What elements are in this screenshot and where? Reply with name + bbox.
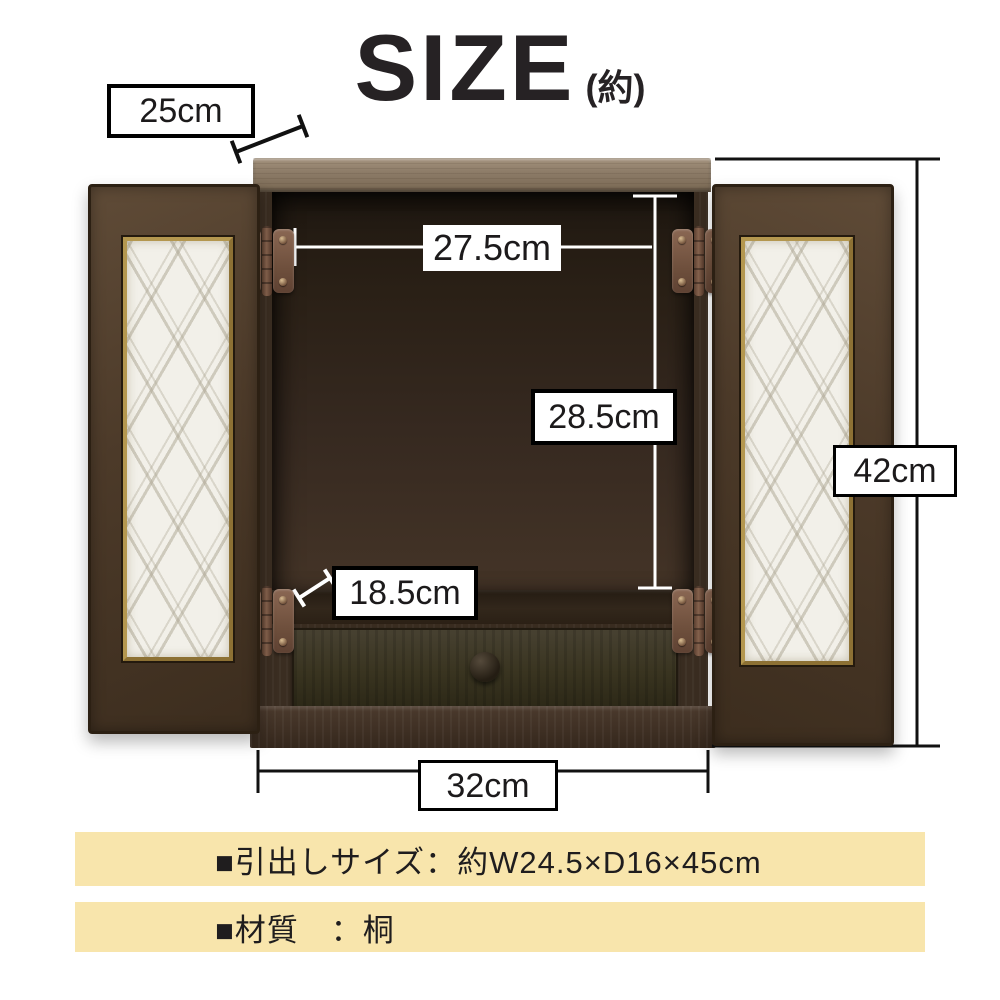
drawer-front — [292, 628, 678, 710]
cabinet-top-board — [253, 158, 711, 192]
dim-label-total-width: 32cm — [418, 760, 558, 811]
dim-label-total-height: 42cm — [833, 445, 957, 497]
dim-label-top-depth: 25cm — [107, 84, 255, 138]
size-approx-suffix: (約) — [585, 67, 645, 108]
size-diagram-page: SIZE(約) — [0, 0, 1000, 1000]
spec-bar-material: ■材質 ：桐 — [75, 902, 925, 952]
dim-label-shelf-depth: 18.5cm — [332, 566, 478, 620]
door-left — [88, 184, 260, 734]
spec-bar-drawer-size: ■引出しサイズ：約W24.5×D16×45cm — [75, 832, 925, 886]
dim-label-inner-height: 28.5cm — [531, 389, 677, 445]
dim-label-inner-width: 27.5cm — [423, 225, 561, 271]
size-title-text: SIZE — [355, 15, 576, 120]
drawer-knob — [470, 652, 500, 682]
door-left-glass-panel — [123, 237, 233, 661]
spec-text-material: ■材質 ：桐 — [215, 905, 395, 950]
cabinet-base-plinth — [250, 706, 716, 748]
spec-text-drawer-size: ■引出しサイズ：約W24.5×D16×45cm — [215, 837, 762, 882]
